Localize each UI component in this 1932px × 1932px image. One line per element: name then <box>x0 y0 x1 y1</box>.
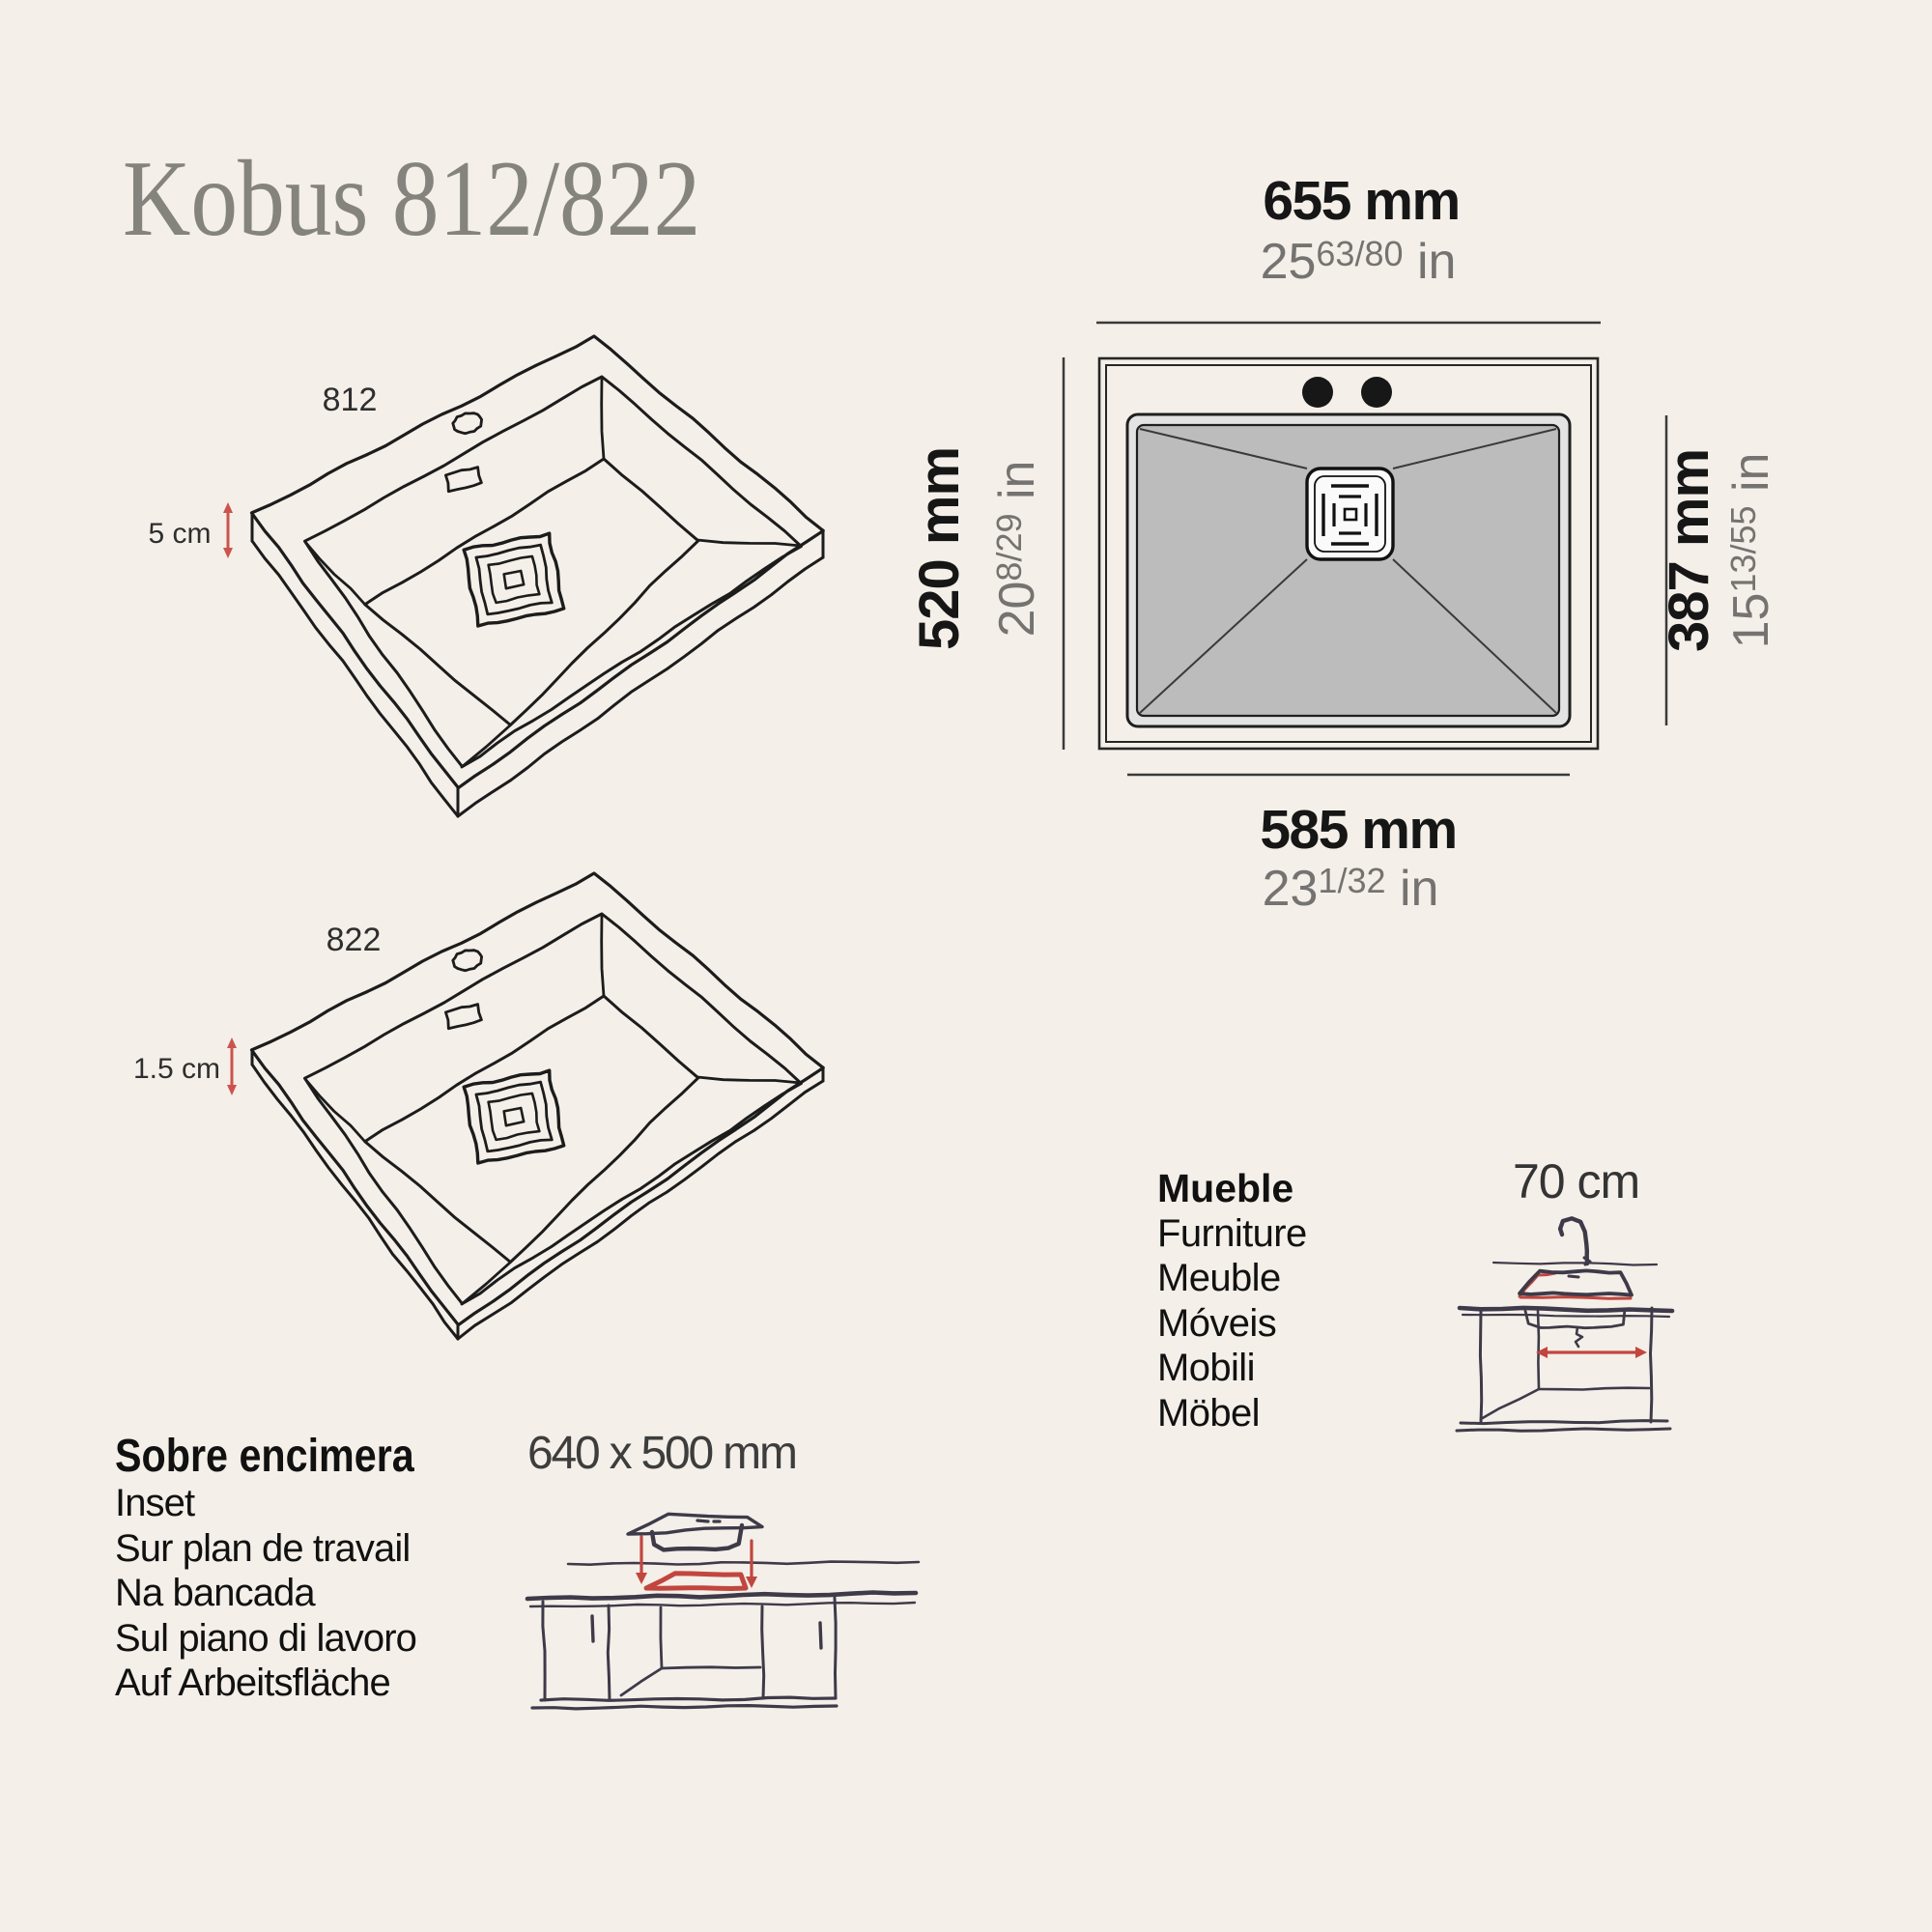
svg-text:2563/80 in: 2563/80 in <box>1261 234 1457 290</box>
svg-text:585 mm: 585 mm <box>1260 799 1456 861</box>
svg-text:1513/55 in: 1513/55 in <box>1723 453 1779 649</box>
svg-text:5 cm: 5 cm <box>148 518 211 550</box>
svg-text:1.5 cm: 1.5 cm <box>133 1053 220 1085</box>
svg-text:208/29 in: 208/29 in <box>989 461 1045 638</box>
svg-text:655 mm: 655 mm <box>1263 170 1459 232</box>
svg-text:822: 822 <box>327 922 382 958</box>
svg-text:387 mm: 387 mm <box>1658 449 1720 652</box>
svg-text:520 mm: 520 mm <box>908 447 971 650</box>
svg-text:231/32 in: 231/32 in <box>1263 861 1439 917</box>
svg-text:812: 812 <box>323 382 378 418</box>
